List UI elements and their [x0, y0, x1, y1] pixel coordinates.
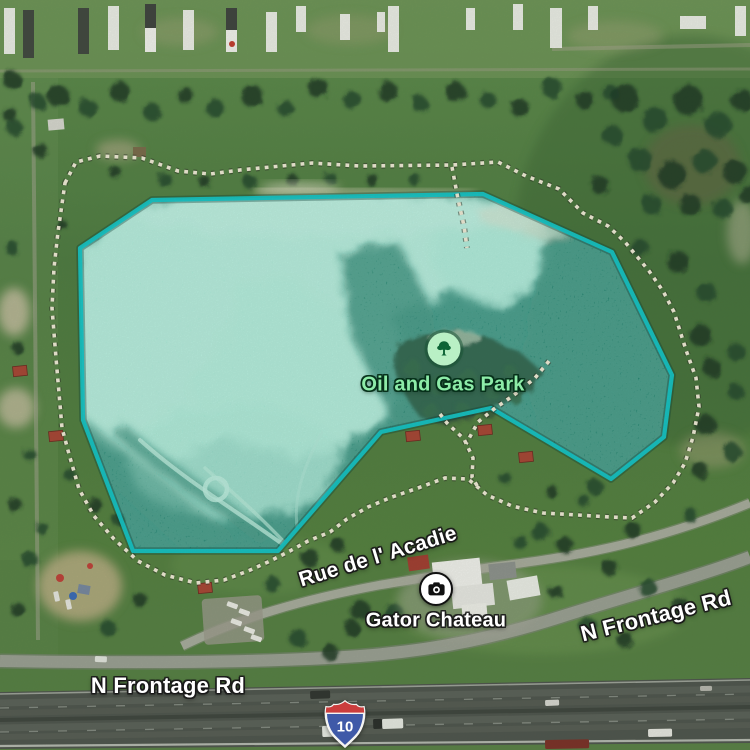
- road-label-n-frontage-rd-left: N Frontage Rd: [91, 673, 245, 699]
- attraction-poi-icon[interactable]: [419, 572, 453, 606]
- park-poi-icon[interactable]: [428, 333, 461, 366]
- map-canvas[interactable]: Oil and Gas Park Gator Chateau Rue de l'…: [0, 0, 750, 750]
- camera-icon: [428, 582, 445, 596]
- tree-icon: [435, 340, 454, 359]
- interstate-10-shield: 10: [323, 700, 367, 748]
- attraction-poi-label[interactable]: Gator Chateau: [366, 610, 506, 633]
- park-poi-label[interactable]: Oil and Gas Park: [361, 374, 524, 397]
- shield-route-number: 10: [337, 719, 354, 736]
